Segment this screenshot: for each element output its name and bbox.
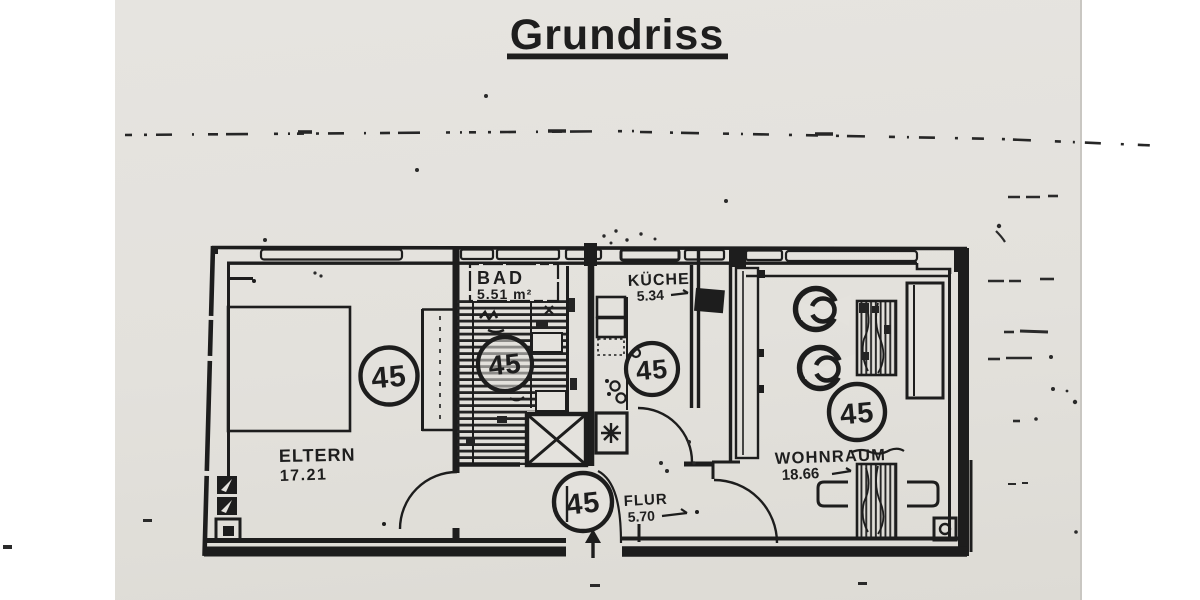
svg-text:17.21: 17.21 (280, 466, 328, 485)
svg-text:18.66: 18.66 (781, 465, 819, 484)
svg-text:45: 45 (487, 347, 523, 381)
svg-text:BAD: BAD (477, 268, 525, 288)
svg-text:5.70: 5.70 (627, 508, 655, 525)
svg-text:5.34: 5.34 (636, 287, 664, 304)
svg-text:45: 45 (370, 360, 408, 396)
svg-text:5.51 m²: 5.51 m² (477, 286, 532, 302)
svg-text:ELTERN: ELTERN (279, 445, 356, 466)
svg-text:Grundriss: Grundriss (510, 11, 725, 59)
svg-text:45: 45 (839, 397, 876, 432)
svg-text:45: 45 (564, 486, 601, 521)
svg-text:45: 45 (635, 354, 670, 387)
